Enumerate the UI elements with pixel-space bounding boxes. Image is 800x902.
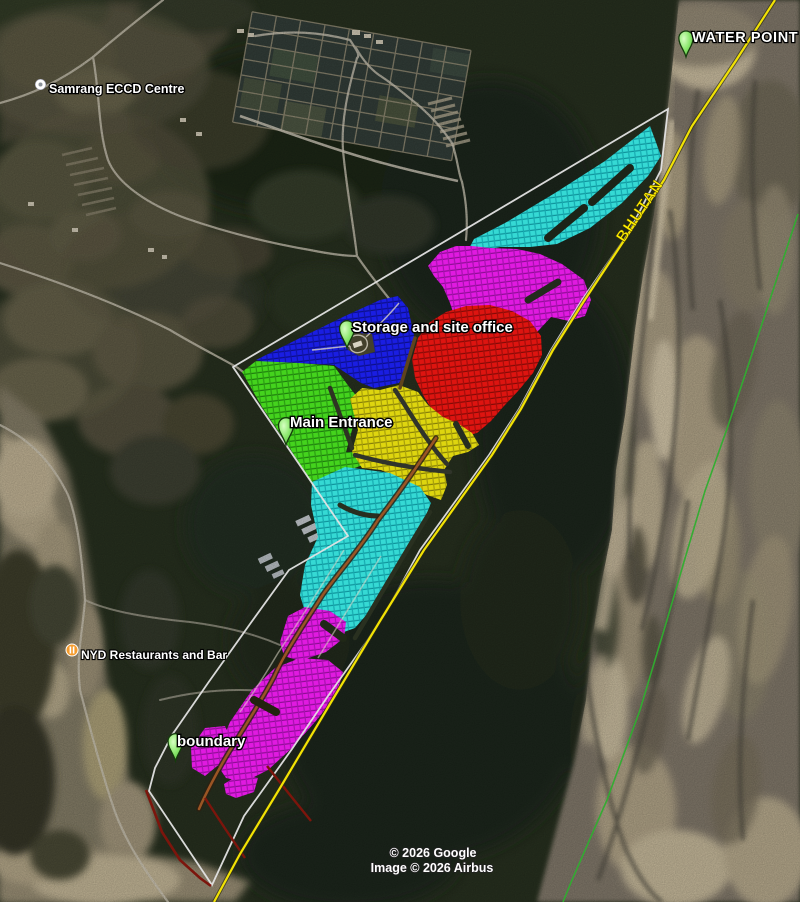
svg-text:Samrang ECCD Centre: Samrang ECCD Centre (49, 82, 184, 96)
svg-text:WATER POINT: WATER POINT (692, 30, 798, 46)
svg-text:boundary: boundary (177, 733, 246, 750)
svg-text:Image © 2026 Airbus: Image © 2026 Airbus (371, 861, 494, 875)
svg-text:Main Entrance: Main Entrance (290, 414, 393, 431)
svg-text:© 2026 Google: © 2026 Google (389, 846, 476, 860)
svg-text:NYD Restaurants and Bar: NYD Restaurants and Bar (81, 648, 227, 662)
svg-text:Storage and site office: Storage and site office (352, 319, 513, 336)
